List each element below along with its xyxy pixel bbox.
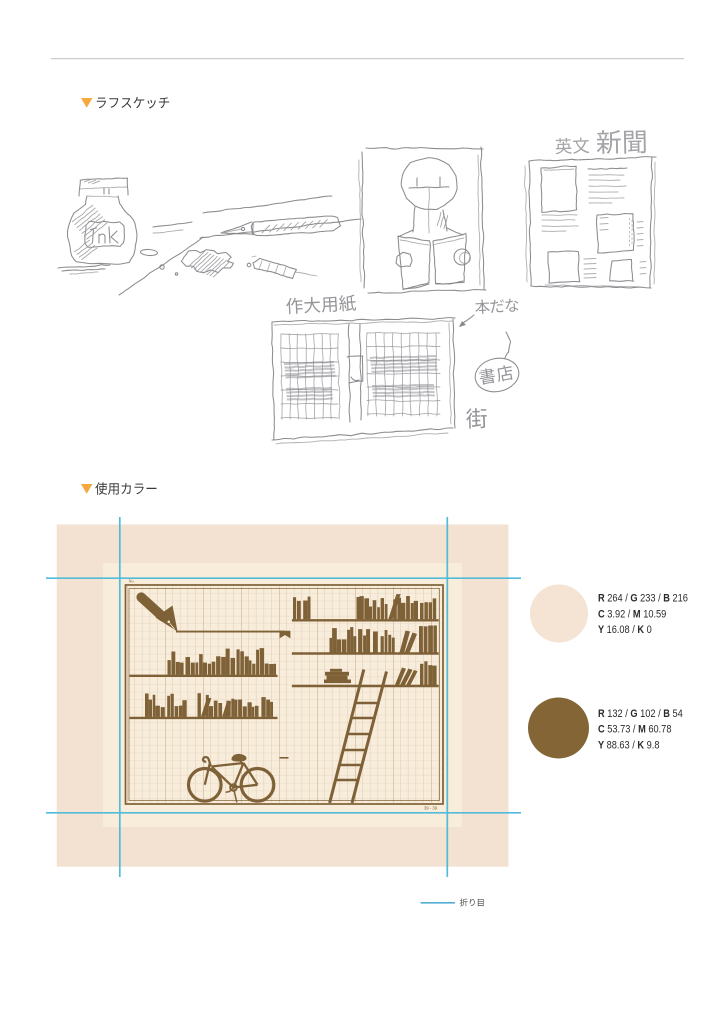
svg-text:R 132 / G 102 / B 54: R 132 / G 102 / B 54 <box>598 708 683 720</box>
svg-text:Y 16.08 / K 0: Y 16.08 / K 0 <box>598 625 652 637</box>
svg-text:R 264 / G 233 / B 216: R 264 / G 233 / B 216 <box>598 593 688 605</box>
svg-text:C 53.73 / M 60.78: C 53.73 / M 60.78 <box>598 724 672 736</box>
svg-text:Y 88.63 / K 9.8: Y 88.63 / K 9.8 <box>598 740 660 752</box>
svg-text:39 - 39: 39 - 39 <box>424 806 438 811</box>
svg-text:C 3.92 / M 10.59: C 3.92 / M 10.59 <box>598 609 667 621</box>
svg-text:No.: No. <box>128 579 135 584</box>
